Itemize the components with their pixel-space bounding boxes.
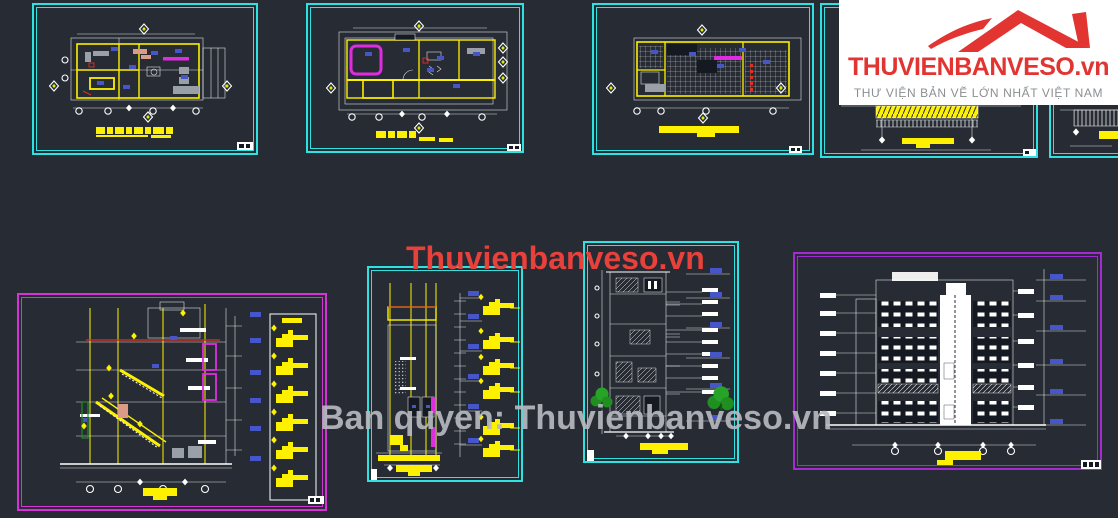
sheet-side-elevation (793, 252, 1102, 470)
brand-name: THUVIENBANVESO.vn (839, 53, 1118, 82)
right-leader-labels (1013, 289, 1034, 410)
floor-plan-3-drawing (595, 6, 813, 154)
sheet-cross-section (17, 293, 327, 511)
tree-icon (591, 388, 613, 411)
roof-logo-icon (920, 2, 1100, 54)
sheet-floor-plan-3 (592, 3, 814, 155)
sheet-front-elevation (583, 241, 739, 463)
brand-tagline: THƯ VIỆN BẢN VẼ LỚN NHẤT VIỆT NAM (839, 86, 1118, 100)
furniture (172, 440, 216, 458)
cross-section-drawing (20, 296, 326, 510)
cad-preview-canvas: THUVIENBANVESO.vn THƯ VIỆN BẢN VẼ LỚN NH… (0, 0, 1118, 518)
title-block (507, 144, 521, 151)
level-step-details (478, 294, 520, 457)
title-block (587, 450, 594, 461)
title-block (371, 469, 377, 480)
title-block (308, 496, 324, 504)
title-text-blocks (376, 131, 453, 142)
sheet-floor-plan-1 (32, 3, 258, 155)
level-labels (1036, 274, 1086, 425)
stair-detail-panel (270, 314, 316, 500)
title-text-blocks (96, 127, 173, 138)
furniture (85, 49, 199, 94)
title-block (1081, 460, 1101, 469)
leader-labels (666, 288, 718, 394)
left-leader-labels (820, 293, 876, 416)
side-elevation-drawing (796, 255, 1101, 469)
longitudinal-section-drawing (370, 269, 522, 481)
floor-plan-1-drawing (35, 6, 257, 154)
title-text-blocks (659, 126, 739, 137)
level-labels (250, 312, 261, 461)
title-block (789, 146, 802, 153)
title-block (237, 142, 253, 150)
site-logo: THUVIENBANVESO.vn THƯ VIỆN BẢN VẼ LỚN NH… (839, 0, 1118, 105)
title-block (1023, 149, 1036, 156)
sheet-longitudinal-section (367, 266, 523, 482)
front-elevation-drawing (586, 244, 738, 462)
sheet-floor-plan-2 (306, 3, 524, 153)
floor-plan-2-drawing (309, 6, 523, 152)
